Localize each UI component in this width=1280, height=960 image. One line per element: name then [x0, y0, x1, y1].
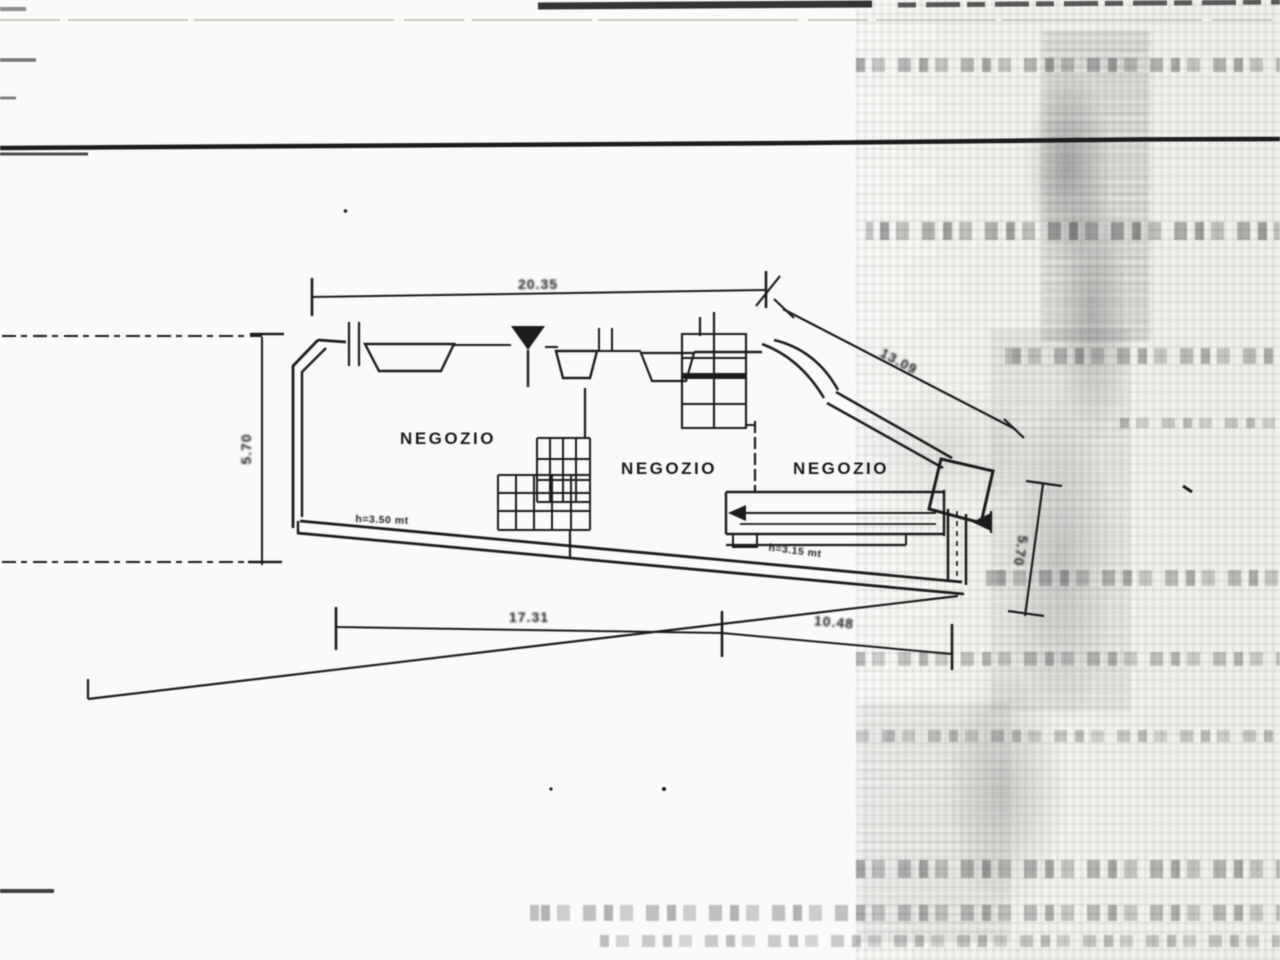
- height-note-room-1: h=3.50 mt: [355, 513, 409, 527]
- dimension-line-bottom: [336, 607, 952, 670]
- alignment-guides: [2, 336, 262, 562]
- scan-frame-marks: [0, 2, 1280, 891]
- scan-dots: [344, 209, 1192, 791]
- dim-label-top-width: 20.35: [518, 276, 558, 292]
- vent-symbol: [511, 326, 545, 387]
- floor-plan-drawing: [0, 0, 1280, 960]
- counter-ramp: [726, 490, 944, 547]
- dim-label-bottom-right-width: 10.48: [813, 612, 854, 631]
- dim-label-bottom-left-width: 17.31: [509, 609, 549, 625]
- room-label-negozio-2: NEGOZIO: [621, 460, 717, 479]
- room-label-negozio-1: NEGOZIO: [400, 430, 496, 449]
- diagonal-wall: [762, 340, 952, 468]
- room-label-negozio-3: NEGOZIO: [793, 460, 889, 479]
- entrance-stairs: [682, 312, 746, 428]
- scanned-floor-plan-page: NEGOZIO NEGOZIO NEGOZIO 20.35 13.09 5.70…: [0, 0, 1280, 960]
- dim-label-left-depth: 5.70: [238, 433, 254, 464]
